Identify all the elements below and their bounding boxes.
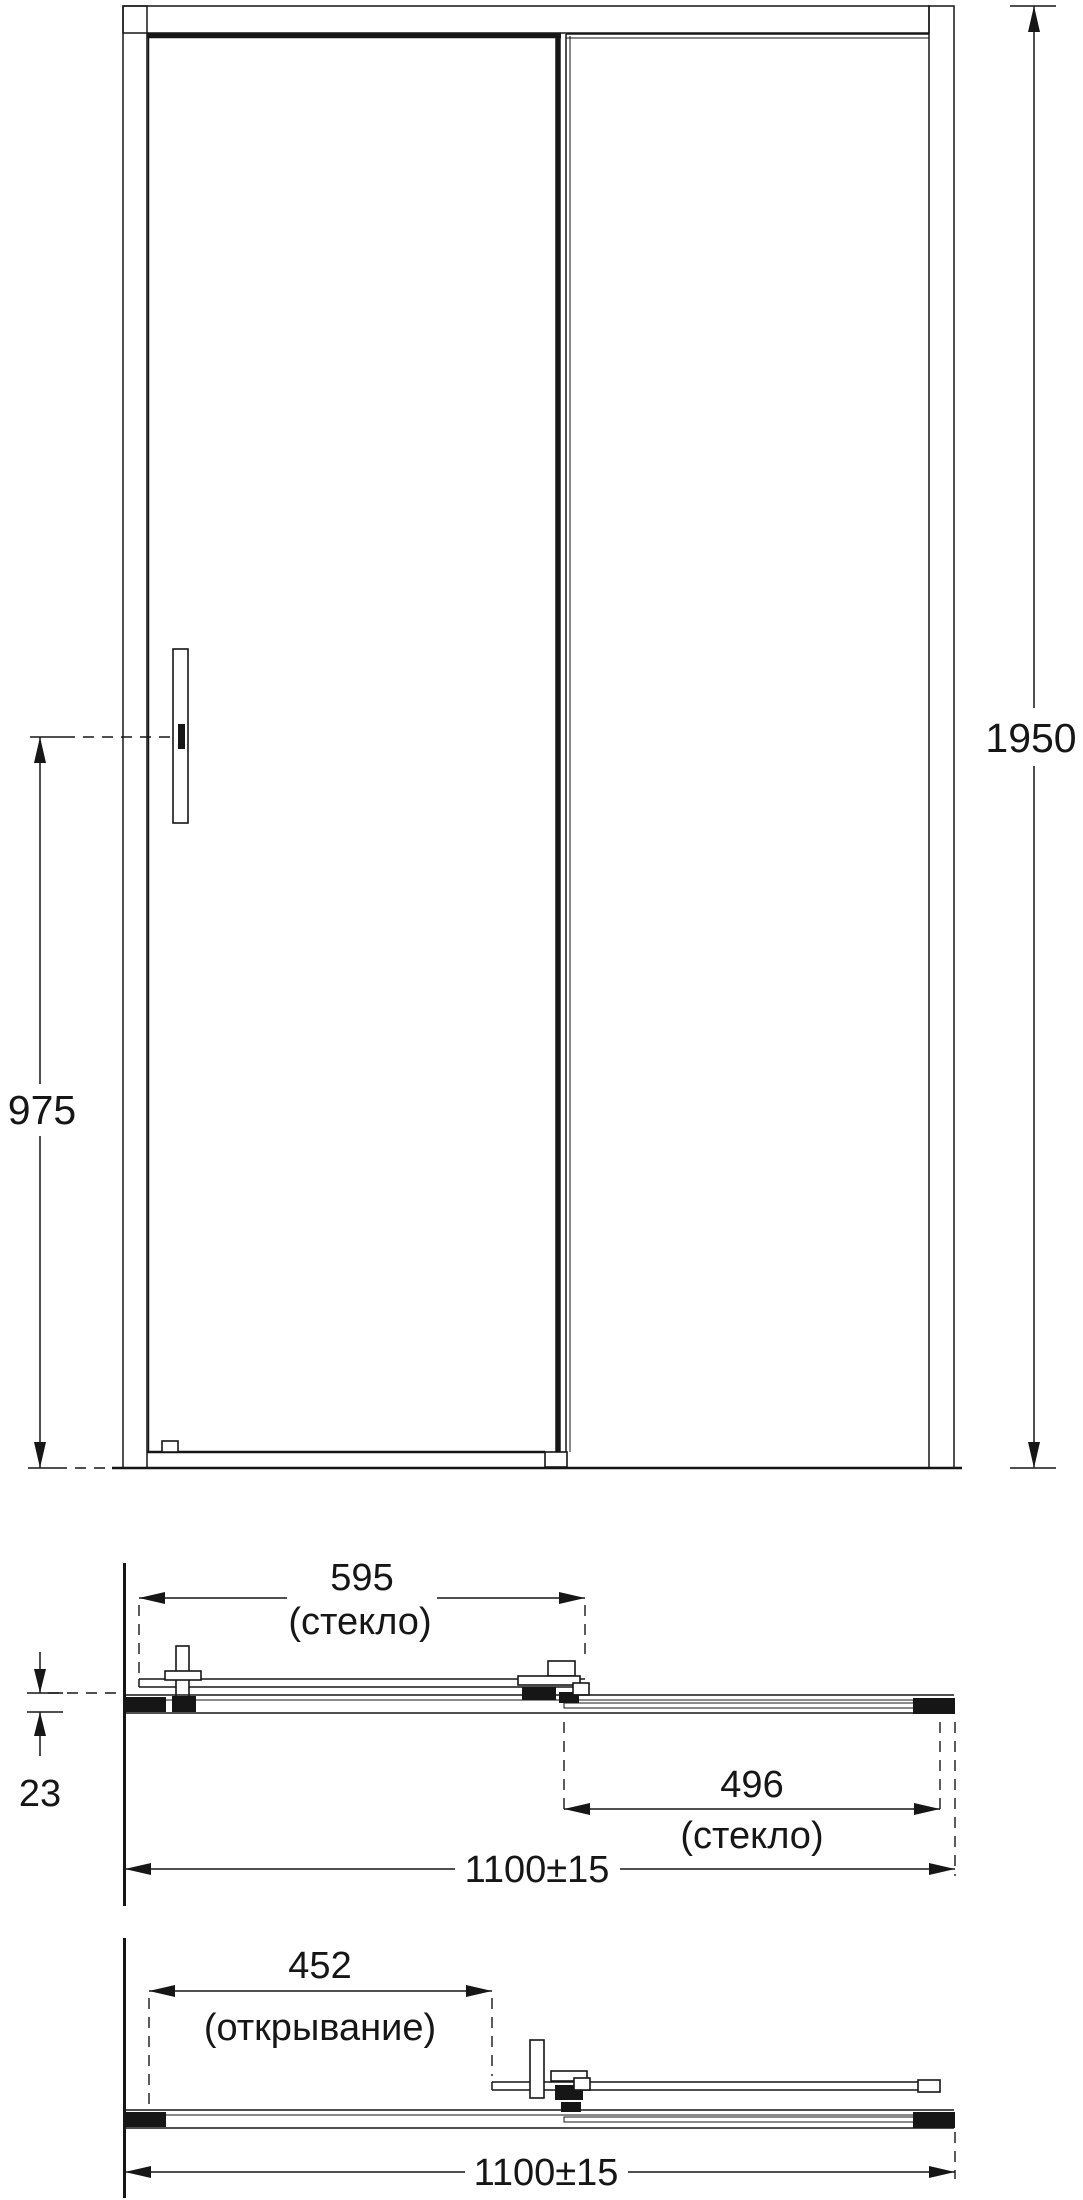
top-rail [123,6,929,33]
plan-view-open: 452 (открывание) [124,1938,955,2198]
dim-opening-label: 452 [288,1945,351,1987]
dim-overall-width-open: 1100±15 [125,2132,955,2194]
arrow-down-icon [1028,1442,1040,1468]
arrow-left-icon [125,1863,151,1875]
dim-opening: 452 (открывание) [149,1945,492,2105]
sliding-door-panel [147,33,567,1467]
track-end-cap-right [913,1698,955,1714]
fixed-glass-plan [564,1703,940,1708]
roller-block [172,1696,196,1712]
right-frame-post [929,6,954,1468]
arrow-left-icon [125,2166,151,2178]
dim-door-glass: 595 (стекло) [139,1557,585,1675]
dim-door-glass-note: (стекло) [288,1601,431,1643]
arrow-down-icon [34,1669,46,1693]
dim-fixed-glass: 496 (стекло) [564,1722,940,1857]
door-hardware-right [518,1661,589,1703]
dim-overall-width-label: 1100±15 [465,1849,610,1891]
fixed-glass-panel [566,34,929,1452]
dim-handle-height-label: 975 [8,1087,76,1133]
bottom-guide-block [545,1452,567,1467]
dim-opening-note: (открывание) [204,2007,436,2049]
clamp-bracket [548,1661,575,1676]
dim-fixed-glass-label: 496 [720,1764,783,1806]
arrow-left-icon [564,1803,590,1815]
right-clamp [918,2080,940,2092]
dim-total-height: 1950 [982,6,1082,1468]
dim-overall-width-open-label: 1100±15 [474,2152,619,2194]
plan-view-closed: 595 (стекло) 23 496 (стекло) [19,1557,955,1906]
arrow-right-icon [559,1592,585,1604]
end-cap-small [574,2078,590,2090]
roller-block [522,1687,556,1700]
drawing-svg: 1950 975 [0,0,1083,2200]
dim-profile-depth: 23 [19,1652,120,1815]
door-handle-grip [178,724,185,749]
door-hardware-open [530,2040,940,2112]
dim-fixed-glass-note: (стекло) [680,1815,823,1857]
arrow-right-icon [929,2166,955,2178]
track-end-cap-left [126,1697,166,1712]
clamp-plate [518,1676,580,1685]
clamp-plate [165,1671,201,1680]
arrow-left-icon [139,1592,165,1604]
fixed-glass-plan [564,2117,940,2122]
door-hardware-left [165,1646,201,1712]
dim-profile-depth-label: 23 [19,1773,61,1815]
front-elevation: 1950 975 [2,6,1082,1468]
dim-total-height-label: 1950 [985,715,1076,761]
track-end-cap-right [913,2112,955,2128]
arrow-right-icon [466,1985,492,1997]
arrow-left-icon [149,1985,175,1997]
track-profile-open [124,2110,955,2128]
arrow-right-icon [929,1863,955,1875]
arrow-up-icon [34,1712,46,1736]
arrow-right-icon [914,1803,940,1815]
track-end-cap-left [126,2112,166,2127]
bottom-stopper [162,1441,178,1452]
end-cap-small [573,1683,589,1695]
arrow-down-icon [34,1442,46,1468]
technical-drawing: 1950 975 [0,0,1083,2200]
arrow-up-icon [1028,6,1040,32]
handle-plan [530,2040,544,2098]
dim-overall-width-closed: 1100±15 [125,1722,955,1891]
arrow-up-icon [34,737,46,763]
dim-door-glass-label: 595 [330,1557,393,1599]
